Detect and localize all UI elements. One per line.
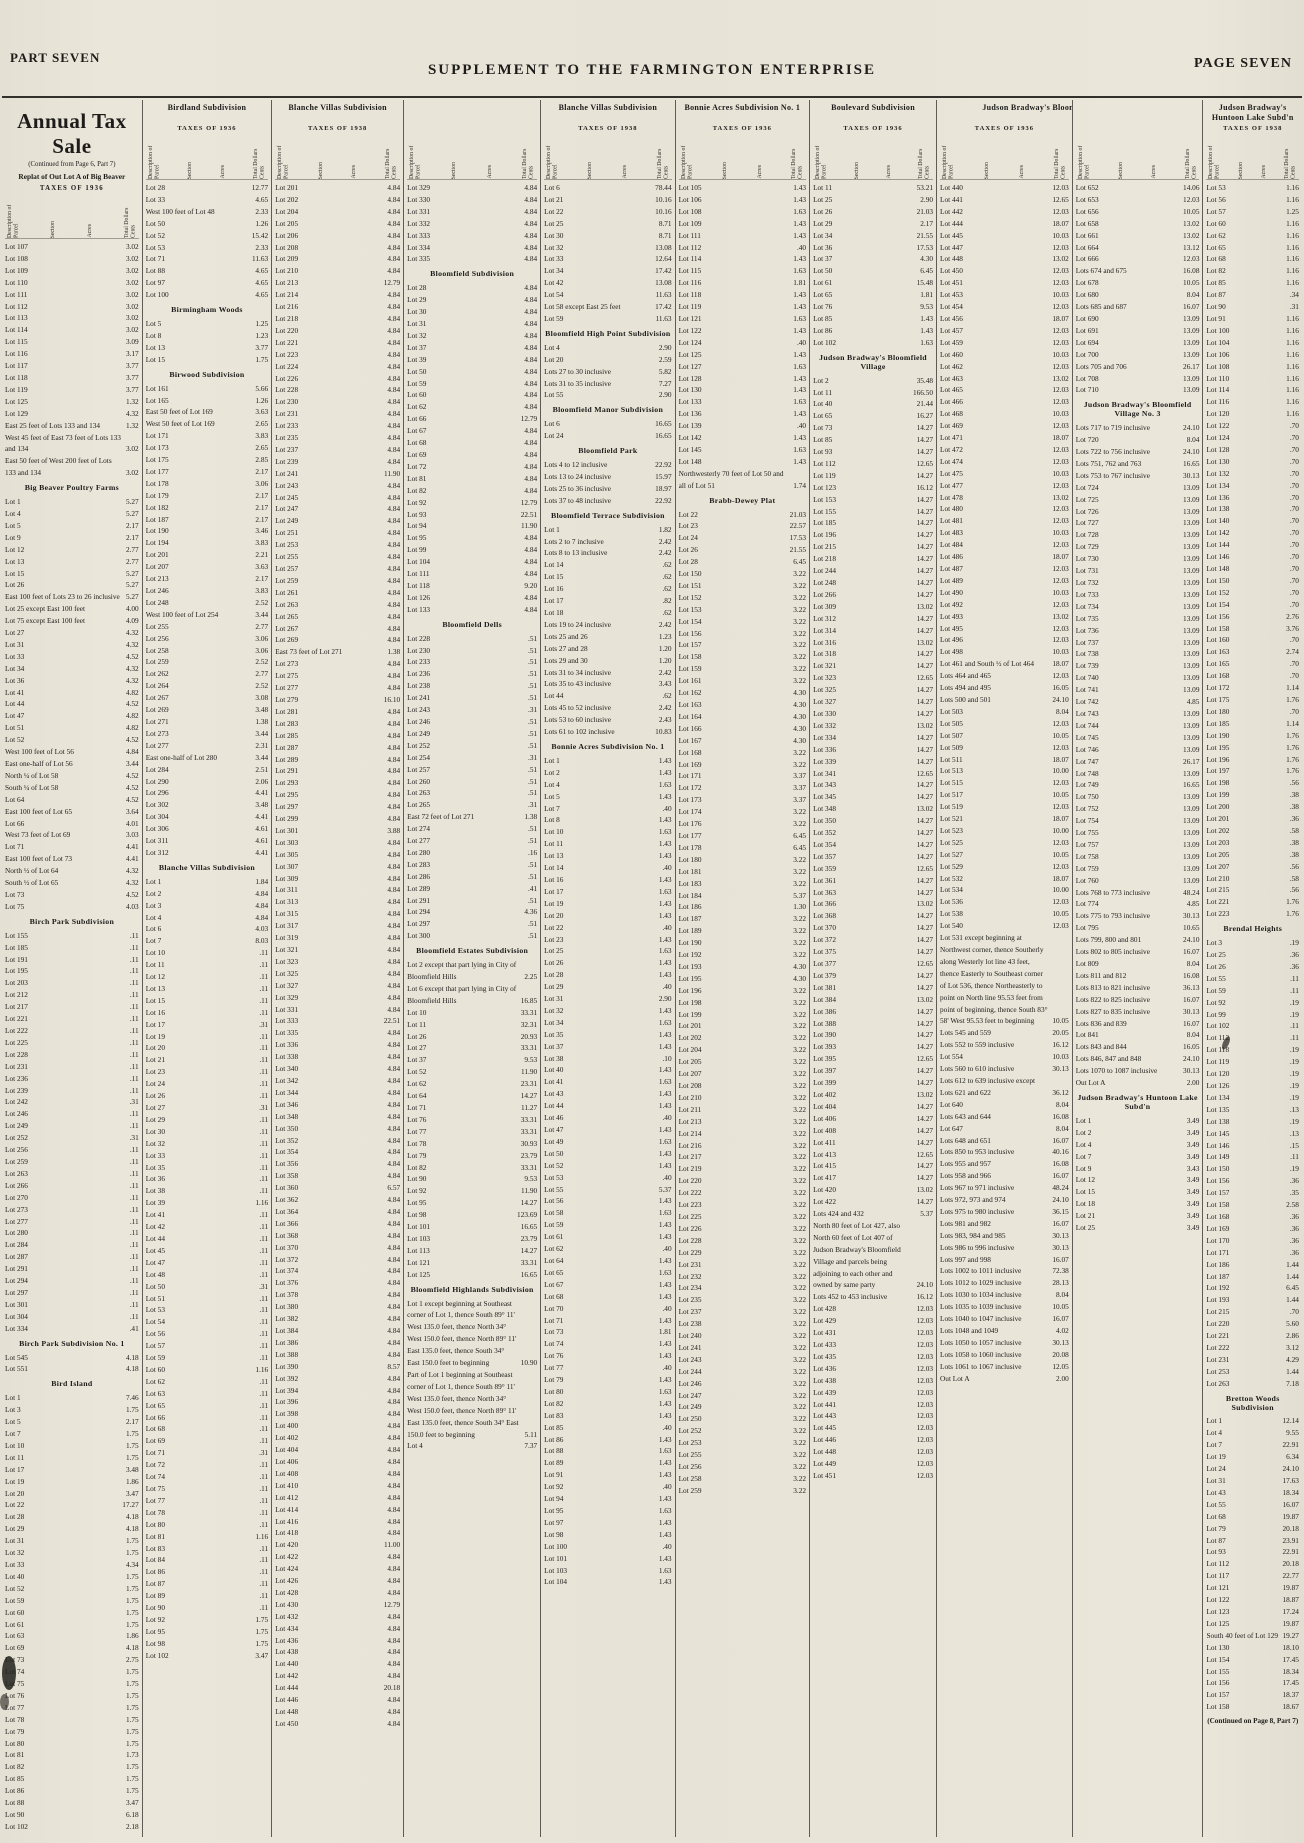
tax-row: Lot 203.11 xyxy=(5,977,139,989)
tax-row: Lots 753 to 767 inclusive30.13 xyxy=(1076,470,1200,482)
tax-row: Lot 2212.86 xyxy=(1206,1330,1298,1342)
column-sublabels: Description of ParcelSectionAcresTotal D… xyxy=(275,135,400,179)
parcel-description: Lot 287 xyxy=(5,1251,130,1263)
tax-row: Lot 71.31 xyxy=(146,1447,268,1459)
tax-amount: 12.03 xyxy=(1052,861,1068,873)
tax-row: Lot 32.11 xyxy=(146,1138,268,1150)
tax-row: Lots 31 to 35 inclusive7.27 xyxy=(544,378,671,390)
parcel-description: Lot 795 xyxy=(1076,922,1183,934)
subdivision-heading: Birwood Subdivision xyxy=(146,371,268,380)
tax-amount: 22.91 xyxy=(1283,1546,1299,1558)
tax-amount: 1.76 xyxy=(1286,908,1299,920)
tax-amount: 4.84 xyxy=(387,908,400,920)
parcel-description: Lot 75 xyxy=(5,901,126,913)
parcel-description: Lot 14 xyxy=(544,559,662,571)
tax-row: Lot 63.11 xyxy=(146,1388,268,1400)
tax-row: Lot 49810.03 xyxy=(940,646,1069,658)
tax-amount: 2.77 xyxy=(126,544,139,556)
tax-amount: 4.84 xyxy=(387,730,400,742)
tax-amount: 4.32 xyxy=(126,675,139,687)
tax-amount: 16.27 xyxy=(917,410,933,422)
parcel-description: Lot 658 xyxy=(1076,218,1183,230)
parcel-description: Lot 82 xyxy=(5,1761,126,1773)
tax-row: Lot 1141.16 xyxy=(1206,384,1298,396)
tax-amount: 2.77 xyxy=(255,668,268,680)
tax-row: Lot 44512.03 xyxy=(813,1422,933,1434)
tax-row: South ¼ of Lot 584.52 xyxy=(5,782,139,794)
tax-amount: 4.84 xyxy=(387,623,400,635)
tax-amount: 3.02 xyxy=(126,277,139,289)
tax-row: Lot 314.84 xyxy=(407,318,537,330)
parcel-description: Lots 799, 800 and 801 xyxy=(1076,934,1183,946)
parcel-description: Lot 154 xyxy=(1206,1654,1282,1666)
parcel-description: Lots 8 to 13 inclusive xyxy=(544,547,659,559)
tax-row: Lot 191.86 xyxy=(5,1476,139,1488)
tax-row: Lot 1961.76 xyxy=(1206,754,1298,766)
tax-amount: .11 xyxy=(259,1376,268,1388)
tax-amount: 1.75 xyxy=(126,1678,139,1690)
tax-row: Lot 1664.30 xyxy=(679,723,806,735)
parcel-description: Lot 402 xyxy=(275,1432,387,1444)
parcel-description: Lot 204 xyxy=(275,206,387,218)
tax-amount: 17.42 xyxy=(655,301,671,313)
tax-row: Lot 39014.27 xyxy=(813,1029,933,1041)
parcel-description: Lot 106 xyxy=(1206,349,1286,361)
column-sublabels: Description of ParcelSectionAcresTotal D… xyxy=(146,135,268,179)
parcel-description: Lot 249 xyxy=(5,1120,130,1132)
tax-amount: 1.43 xyxy=(659,1005,672,1017)
tax-amount: 2.17 xyxy=(255,466,268,478)
tax-row: Lot 4104.84 xyxy=(275,1480,400,1492)
tax-row: Lots 35 to 43 inclusive3.43 xyxy=(544,678,671,690)
parcel-description: Lot 257 xyxy=(407,764,528,776)
tax-row: Lot 297.11 xyxy=(5,1287,139,1299)
tax-amount: 3.22 xyxy=(793,1366,806,1378)
parcel-description: Lot 103 xyxy=(407,1233,521,1245)
tax-amount: .82 xyxy=(662,595,671,607)
tax-row: Lot 6478.04 xyxy=(940,1123,1069,1135)
tax-row: Lot 111.75 xyxy=(5,1452,139,1464)
tax-amount: .58 xyxy=(1290,873,1299,885)
parcel-description: Lot 2 except that part lying in City of … xyxy=(407,959,524,983)
parcel-description: Lot 469 xyxy=(940,420,1052,432)
parcel-description: Lot 431 xyxy=(813,1327,917,1339)
tax-row: Lot 123.49 xyxy=(1076,1174,1200,1186)
tax-amount: 4.84 xyxy=(387,1575,400,1587)
tax-amount: 8.04 xyxy=(1187,958,1200,970)
tax-amount: .11 xyxy=(1290,1151,1299,1163)
tax-amount: 32.31 xyxy=(521,1019,537,1031)
parcel-description: Lot 23 xyxy=(146,1066,260,1078)
parcel-description: Lot 118 xyxy=(679,289,794,301)
tax-row: Lot 165.70 xyxy=(1206,658,1298,670)
tax-row: Lot 1583.76 xyxy=(1206,623,1298,635)
tax-amount: 5.66 xyxy=(255,383,268,395)
parcel-description: Lot 168 xyxy=(1206,670,1289,682)
tax-row: Lot 4164.84 xyxy=(275,1516,400,1528)
parcel-description: Lot 24 xyxy=(1206,1463,1282,1475)
tax-row: Lot 35912.65 xyxy=(813,863,933,875)
tax-amount: .38 xyxy=(1290,801,1299,813)
tax-amount: .11 xyxy=(259,1162,268,1174)
tax-amount: 3.22 xyxy=(793,806,806,818)
tax-amount: 4.84 xyxy=(387,1004,400,1016)
page-number-label: PAGE SEVEN xyxy=(1194,56,1292,72)
tax-amount: 18.07 xyxy=(1052,551,1068,563)
tax-amount: 16.05 xyxy=(1183,1041,1199,1053)
parcel-description: Lot 285 xyxy=(275,730,387,742)
tax-amount: 4.84 xyxy=(387,301,400,313)
parcel-description: Lot 656 xyxy=(1076,206,1183,218)
tax-amount: .11 xyxy=(259,1459,268,1471)
tax-amount: .31 xyxy=(528,799,537,811)
tax-amount: .11 xyxy=(259,1340,268,1352)
parcel-description: Lot 182 xyxy=(146,502,256,514)
tax-amount: 3.22 xyxy=(793,1461,806,1473)
tax-amount: 1.43 xyxy=(793,182,806,194)
tax-row: Lot 2133.22 xyxy=(679,1116,806,1128)
tax-row: Lot 9411.90 xyxy=(407,520,537,532)
parcel-description: Lot 475 xyxy=(940,468,1052,480)
tax-row: East 72 feet of Lot 2711.38 xyxy=(407,811,537,823)
parcel-description: Lot 392 xyxy=(275,1373,387,1385)
tax-amount: 16.65 xyxy=(1183,458,1199,470)
tax-row: Lots 552 to 559 inclusive16.12 xyxy=(940,1039,1069,1051)
parcel-description: Lot 737 xyxy=(1076,637,1183,649)
tax-row: Lot 1751.76 xyxy=(1206,694,1298,706)
parcel-description: Lot 417 xyxy=(813,1172,917,1184)
parcel-description: Lot 332 xyxy=(407,218,524,230)
tax-amount: 12.79 xyxy=(521,413,537,425)
parcel-description: Lot 100 xyxy=(1206,325,1286,337)
tax-row: Lot 3213.08 xyxy=(544,242,671,254)
tax-row: Lot 2812.77 xyxy=(146,182,268,194)
tax-row: Lot 160.70 xyxy=(1206,634,1298,646)
tax-row: Lot 2424.10 xyxy=(1206,1463,1298,1475)
tax-row: Lot 48412.03 xyxy=(940,539,1069,551)
parcel-description: Lot 356 xyxy=(275,1158,387,1170)
tax-amount: 3.22 xyxy=(793,913,806,925)
parcel-description: Lot 440 xyxy=(940,182,1052,194)
tax-row: Lot 1251.43 xyxy=(679,349,806,361)
tax-row: Lot 684.84 xyxy=(407,437,537,449)
tax-row: Lot 674.84 xyxy=(407,425,537,437)
tax-amount: 18.87 xyxy=(1283,1594,1299,1606)
tax-amount: 4.84 xyxy=(524,230,537,242)
tax-row: Lot 15514.27 xyxy=(813,506,933,518)
tax-amount: 4.30 xyxy=(793,699,806,711)
tax-amount: 4.52 xyxy=(126,651,139,663)
parcel-description: Lot 110 xyxy=(5,277,126,289)
tax-row: Lot 11.84 xyxy=(146,876,268,888)
parcel-description: Lot 342 xyxy=(275,1075,387,1087)
parcel-description: Lot 265 xyxy=(407,799,528,811)
parcel-description: Lot 16 xyxy=(544,583,662,595)
tax-amount: 13.09 xyxy=(1183,337,1199,349)
tax-row: Lot 291.11 xyxy=(5,1263,139,1275)
tax-row: Lots 545 and 55920.05 xyxy=(940,1027,1069,1039)
tax-amount: 2.90 xyxy=(920,194,933,206)
parcel-description: Lot 80 xyxy=(544,1386,659,1398)
parcel-description: Lot 256 xyxy=(679,1461,794,1473)
tax-amount: 3.22 xyxy=(793,1271,806,1283)
tax-amount: 20.05 xyxy=(1052,1027,1068,1039)
parcel-description: Lot 181 xyxy=(679,866,794,878)
tax-row: Lot 8233.31 xyxy=(407,1162,537,1174)
tax-amount: .40 xyxy=(662,803,671,815)
tax-row: Lot 2494.84 xyxy=(275,515,400,527)
tax-row: Lot 884.65 xyxy=(146,265,268,277)
parcel-description: Lot 382 xyxy=(275,1313,387,1325)
tax-amount: 4.36 xyxy=(524,906,537,918)
parcel-description: Lot 380 xyxy=(275,1301,387,1313)
tax-amount: 12.03 xyxy=(1052,361,1068,373)
column-header: Description of ParcelSectionAcresTotal D… xyxy=(407,100,537,180)
parcel-description: Lot 145 xyxy=(679,444,794,456)
tax-row: Lot 8418.04 xyxy=(1076,1029,1200,1041)
tax-row: Lot 87.11 xyxy=(146,1578,268,1590)
tax-amount: 4.84 xyxy=(524,604,537,616)
tax-row: Lot 334.41 xyxy=(5,1323,139,1335)
subdivision-heading: Blanche Villas Subdivision xyxy=(146,864,268,873)
parcel-description: Lot 740 xyxy=(1076,672,1183,684)
parcel-description: Lots 25 to 36 inclusive xyxy=(544,483,655,495)
tax-row: Lot 2132.17 xyxy=(146,573,268,585)
tax-amount: 12.03 xyxy=(1052,503,1068,515)
parcel-description: Lot 53 xyxy=(146,242,256,254)
tax-row: Lots 972, 973 and 97424.10 xyxy=(940,1194,1069,1206)
parcel-description: Lot 95 xyxy=(407,532,524,544)
parcel-description: Lot 126 xyxy=(1206,1080,1289,1092)
tax-amount: 1.43 xyxy=(659,1469,672,1481)
tax-row: Lot 13.49 xyxy=(1076,1115,1200,1127)
tax-amount: 1.73 xyxy=(126,1749,139,1761)
parcel-description: Lot 251 xyxy=(275,527,387,539)
tax-amount: 16.65 xyxy=(521,1269,537,1281)
tax-amount: 13.02 xyxy=(1052,253,1068,265)
tax-row: Lot 1533.22 xyxy=(679,604,806,616)
tax-amount: 3.22 xyxy=(793,1259,806,1271)
parcel-description: Lot 242 xyxy=(5,1096,130,1108)
tax-row: Lot 37514.27 xyxy=(813,946,933,958)
parcel-description: Lots 648 and 651 xyxy=(940,1135,1052,1147)
parcel-description: Lot 266 xyxy=(5,1180,130,1192)
tax-row: Lot 44812.03 xyxy=(813,1446,933,1458)
tax-amount: 13.09 xyxy=(1183,803,1199,815)
parcel-description: Lot 64 xyxy=(544,1255,659,1267)
tax-amount: 1.43 xyxy=(659,1374,672,1386)
tax-row: Lot 2403.22 xyxy=(679,1330,806,1342)
tax-row: Lot 79510.65 xyxy=(1076,922,1200,934)
subdivision-group-name: Blanche Villas Subdivision xyxy=(544,103,671,123)
tax-amount: 4.84 xyxy=(387,194,400,206)
tax-row: Lot 51912.03 xyxy=(940,801,1069,813)
tax-amount: 12.65 xyxy=(917,1149,933,1161)
tax-amount: 24.10 xyxy=(1183,446,1199,458)
tax-row: Lot 203.38 xyxy=(1206,837,1298,849)
parcel-description: Lot 235 xyxy=(275,432,387,444)
tax-amount: 3.49 xyxy=(1187,1151,1200,1163)
tax-amount: 3.02 xyxy=(126,253,139,265)
parcel-description: Lot 151 xyxy=(679,580,794,592)
parcel-description: Lot 408 xyxy=(813,1125,917,1137)
tax-row: Lot 1931.44 xyxy=(1206,1294,1298,1306)
subdivision-heading: Birch Park Subdivision xyxy=(5,918,139,927)
rotated-column-label: Total Dollars Cents xyxy=(791,135,804,179)
parcel-description: Lot 438 xyxy=(275,1646,387,1658)
parcel-description: Lot 207 xyxy=(146,561,256,573)
parcel-description: Lot 10 xyxy=(5,1440,126,1452)
tax-amount: .19 xyxy=(1290,997,1299,1009)
tax-amount: 1.86 xyxy=(126,1476,139,1488)
tax-row: Lot 1133.02 xyxy=(5,312,139,324)
tax-amount: .51 xyxy=(528,656,537,668)
tax-amount: 21.03 xyxy=(917,206,933,218)
parcel-description: Lot 171 xyxy=(1206,1247,1289,1259)
tax-row: Lot 4484.84 xyxy=(275,1706,400,1718)
parcel-description: Lot 53 xyxy=(1206,182,1286,194)
column-sublabels: Description of ParcelSectionAcresTotal D… xyxy=(1206,135,1298,179)
parcel-description: Lot 35 xyxy=(146,1162,260,1174)
newspaper-title: SUPPLEMENT TO THE FARMINGTON ENTERPRISE xyxy=(0,62,1304,79)
tax-amount: .13 xyxy=(1290,1104,1299,1116)
tax-amount: 4.84 xyxy=(387,944,400,956)
tax-amount: 3.22 xyxy=(793,1330,806,1342)
parcel-description: Lot 189 xyxy=(679,925,794,937)
tax-row: Lot 1873.22 xyxy=(679,913,806,925)
parcel-description: Lot 213 xyxy=(679,1116,794,1128)
tax-row: Lot 81.43 xyxy=(544,814,671,826)
tax-row: Lot 678.44 xyxy=(544,182,671,194)
tax-amount: 8.04 xyxy=(1187,1029,1200,1041)
parcel-description: Lot 24 xyxy=(544,430,655,442)
tax-row: Lot 31414.27 xyxy=(813,625,933,637)
parcel-description: Lot 240 xyxy=(679,1330,794,1342)
tax-row: South 40 feet of Lot 12919.27 xyxy=(1206,1630,1298,1642)
parcel-description: Lot 173 xyxy=(146,442,256,454)
parcel-description: Lots 775 to 793 inclusive xyxy=(1076,910,1183,922)
tax-row: North ½ of Lot 644.32 xyxy=(5,865,139,877)
tax-amount: 3.02 xyxy=(126,443,139,455)
tax-row: Lot 46810.03 xyxy=(940,408,1069,420)
tax-amount: 6.45 xyxy=(793,830,806,842)
tax-row: Lot 78.03 xyxy=(146,935,268,947)
parcel-description: Lot 108 xyxy=(1206,361,1286,373)
tax-row: Lot 77.11 xyxy=(146,1495,268,1507)
parcel-description: Lot 1 xyxy=(5,496,126,508)
parcel-description: Lot 744 xyxy=(1076,720,1183,732)
tax-row: Lot 2353.22 xyxy=(679,1294,806,1306)
tax-row: Lot 1132.31 xyxy=(407,1019,537,1031)
tax-amount: 10.03 xyxy=(1052,349,1068,361)
tax-row: Lot 4124.84 xyxy=(275,1492,400,1504)
parcel-description: Lot 742 xyxy=(1076,696,1187,708)
tax-amount: .70 xyxy=(1290,480,1299,492)
tax-amount: 5.11 xyxy=(525,1429,538,1441)
parcel-description: Lot 144 xyxy=(1206,539,1289,551)
tax-amount: 1.43 xyxy=(793,230,806,242)
parcel-description: Lot 199 xyxy=(1206,789,1289,801)
tax-row: Lot 1833.22 xyxy=(679,878,806,890)
parcel-description: West 73 feet of Lot 69 xyxy=(5,829,126,841)
tax-row: Lot 1624.30 xyxy=(679,687,806,699)
parcel-description: Lot 222 xyxy=(679,1187,794,1199)
tax-amount: 4.84 xyxy=(387,242,400,254)
tax-amount: 14.27 xyxy=(917,577,933,589)
tax-amount: 2.00 xyxy=(1056,1373,1069,1385)
tax-row: Lot 1161.16 xyxy=(1206,396,1298,408)
tax-amount: 2.42 xyxy=(659,536,672,548)
parcel-description: Lot 304 xyxy=(5,1311,130,1323)
tax-amount: 1.43 xyxy=(659,957,672,969)
parcel-description: Lot 348 xyxy=(813,803,917,815)
tax-row: Lot 2534.84 xyxy=(275,539,400,551)
tax-amount: 12.03 xyxy=(1052,265,1068,277)
parcel-description: Lot 736 xyxy=(1076,625,1183,637)
tax-amount: 14.27 xyxy=(917,1125,933,1137)
tax-amount: 3.83 xyxy=(255,430,268,442)
tax-row: Lot 3804.84 xyxy=(275,1301,400,1313)
parcel-description: Lot 55 xyxy=(544,389,659,401)
tax-amount: 3.22 xyxy=(793,1247,806,1259)
parcel-description: Lots 975 to 980 inclusive xyxy=(940,1206,1052,1218)
tax-row: Lot 2443.22 xyxy=(679,1366,806,1378)
column-sublabels: Description of ParcelSectionAcresTotal D… xyxy=(544,135,671,179)
tax-row: Lot 851.75 xyxy=(5,1773,139,1785)
tax-row: Lot 3444.84 xyxy=(275,1087,400,1099)
parcel-description: Lot 474 xyxy=(940,456,1052,468)
parcel-description: Lot 393 xyxy=(813,1041,917,1053)
tax-amount: 4.84 xyxy=(524,218,537,230)
parcel-description: Lots 29 and 30 xyxy=(544,655,659,667)
parcel-description: Lot 49 xyxy=(544,1136,659,1148)
tax-row: Lot 2533.22 xyxy=(679,1437,806,1449)
tax-amount: 3.02 xyxy=(126,312,139,324)
parcel-description: Lot 111 xyxy=(407,568,524,580)
tax-row: Lot 611.43 xyxy=(544,1231,671,1243)
parcel-description: Lot 215 xyxy=(813,541,917,553)
tax-row: Lot 10323.79 xyxy=(407,1233,537,1245)
parcel-description: Lot 55 xyxy=(1206,1499,1282,1511)
tax-row: Lot 12519.87 xyxy=(1206,1618,1298,1630)
parcel-description: Lot 332 xyxy=(813,720,917,732)
tax-row: Lot 521.43 xyxy=(544,1160,671,1172)
parcel-description: Lot 31 xyxy=(5,639,126,651)
parcel-description: Lot 95 xyxy=(544,1505,659,1517)
tax-row: Lot 621.16 xyxy=(1206,230,1298,242)
tax-row: Lot 73513.09 xyxy=(1076,613,1200,625)
tax-amount: 4.84 xyxy=(524,206,537,218)
tax-row: Lots 674 and 67516.08 xyxy=(1076,265,1200,277)
parcel-description: Lot 726 xyxy=(1076,506,1183,518)
parcel-description: Lot 384 xyxy=(275,1325,387,1337)
tax-amount: 13.09 xyxy=(1183,313,1199,325)
tax-amount: 4.18 xyxy=(126,1523,139,1535)
tax-amount: 1.25 xyxy=(1286,206,1299,218)
parcel-description: Lot 428 xyxy=(275,1587,387,1599)
tax-row: Lot 5038.04 xyxy=(940,706,1069,718)
parcel-description: Lot 175 xyxy=(146,454,256,466)
tax-row: Lot 1334.84 xyxy=(407,604,537,616)
tax-amount: 1.63 xyxy=(793,361,806,373)
tax-amount: 6.45 xyxy=(920,265,933,277)
parcel-description: Lot 312 xyxy=(813,613,917,625)
parcel-description: Lot 735 xyxy=(1076,613,1183,625)
parcel-description: Lot 39 xyxy=(407,354,524,366)
parcel-description: Lot 22 xyxy=(679,509,790,521)
parcel-description: Lot 27 xyxy=(407,1042,521,1054)
parcel-description: Lot 253 xyxy=(679,1437,794,1449)
